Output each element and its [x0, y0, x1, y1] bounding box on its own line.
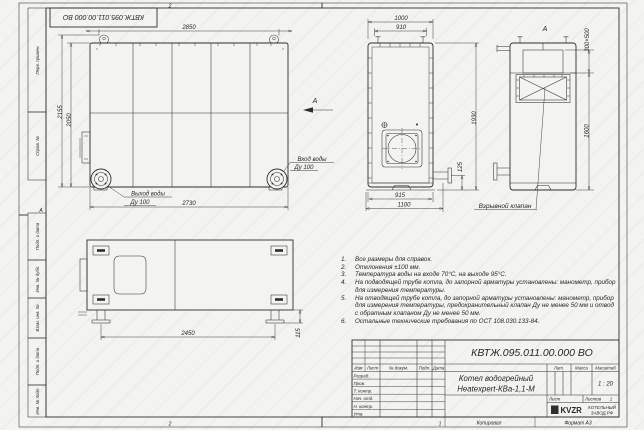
outlet-label: Выход воды — [131, 192, 165, 198]
field-perv-primen: Перв. примен. — [35, 45, 40, 74]
note-text: На отводящей трубе котла, до запорной ар… — [355, 295, 617, 318]
dim-plan-115: 115 — [296, 328, 302, 338]
product-name-line2: Heatexpert-КВа-1,1-М — [457, 385, 535, 394]
note-item: 1.Все размеры для справок. — [341, 256, 617, 264]
masshtab-label: Масштаб — [595, 366, 616, 371]
dim-mid-1930: 1930 — [472, 111, 478, 125]
zone-label-bottom-right: 1 — [439, 422, 442, 428]
technical-notes: 1.Все размеры для справок. 2.Отклонения … — [341, 256, 617, 325]
field-vzam-inv: Взам. инв. № — [35, 304, 40, 331]
doc-code-rotated: КВТЖ.095.011.00.000 ВО — [62, 13, 144, 20]
col-izm: Изм — [354, 366, 362, 371]
field-podp-data-2: Подп. и дата — [35, 347, 40, 375]
company-logo-text: KVZR — [561, 406, 583, 415]
note-text: Все размеры для справок. — [355, 256, 617, 264]
row-razrab: Разраб. — [354, 374, 370, 379]
field-inv-dubl: Инв. № дубл. — [35, 265, 40, 292]
doc-number: КВТЖ.095.011.00.000 ВО — [471, 347, 593, 359]
dim-mid-1000: 1000 — [394, 16, 408, 22]
view-a-label: А — [542, 26, 548, 33]
dim-side-300x500: 300×500 — [585, 28, 591, 52]
product-name-line1: Котел водогрейный — [459, 374, 534, 383]
lit-label: Лит. — [553, 366, 564, 371]
dim-front-height-outer: 2155 — [58, 105, 64, 120]
dim-mid-910: 910 — [396, 25, 407, 31]
listov-label: Листов — [584, 397, 602, 402]
dim-front-width-bottom: 2730 — [181, 201, 196, 207]
view-arrow-label: А — [312, 98, 318, 105]
row-nachotd: Нач. отд. — [354, 396, 374, 401]
note-item: 4.На подводящей трубе котла, до запорной… — [341, 279, 617, 294]
col-docnum: № докум. — [389, 366, 408, 371]
list-label: Лист — [548, 397, 561, 402]
note-item: 3.Температура воды на входе 70°С, на вых… — [341, 271, 617, 279]
dim-front-height-inner: 2050 — [67, 113, 73, 128]
zone-label-bottom: 2 — [168, 422, 172, 428]
col-podp: Подп. — [419, 366, 431, 371]
inlet-label: Вход воды — [297, 157, 327, 163]
note-text: Температура воды на входе 70°С, на выход… — [355, 271, 617, 279]
format-label: Формат А3 — [564, 421, 592, 427]
field-sprav-no: Справ. № — [35, 136, 40, 156]
water-inlet-flange — [267, 169, 287, 189]
note-item: 6.Остальные технические требования по ОС… — [341, 318, 617, 326]
massa-label: Масса — [575, 366, 589, 371]
outlet-dn-label: Ду 100 — [130, 200, 151, 206]
view-a: А 300×500 1600 Взрывной клапан — [474, 26, 594, 210]
front-view: 2850 2155 2050 2730 Выход воды Ду 100 Вх… — [58, 25, 334, 210]
row-prov: Пров. — [354, 381, 366, 386]
col-list: Лист — [366, 366, 379, 371]
row-nkontr: Н. контр. — [354, 404, 374, 409]
zone-label-top: 2 — [168, 4, 172, 10]
company-logo-icon — [551, 406, 559, 415]
dim-mid-125: 125 — [458, 161, 464, 172]
dim-plan-2450: 2450 — [180, 331, 195, 337]
dim-mid-1100: 1100 — [398, 203, 412, 209]
dim-mid-915: 915 — [395, 193, 406, 199]
inlet-dn-label: Ду 100 — [294, 165, 315, 171]
explosion-valve-label: Взрывной клапан — [479, 202, 532, 210]
company-name-line2: ЗАВОД.РФ — [591, 411, 614, 416]
title-block: КВТЖ.095.011.00.000 ВО Котел водогрейный… — [352, 340, 619, 427]
middle-view: 1000 910 1930 125 915 1100 — [366, 16, 479, 212]
kopiroval-label: Копировал — [477, 421, 502, 427]
note-text: На подводящей трубе котла, до запорной а… — [355, 279, 617, 294]
note-item: 5.На отводящей трубе котла, до запорной … — [341, 295, 617, 318]
col-data: Дата — [432, 366, 445, 371]
company-name-line1: КОТЕЛЬНЫЙ — [588, 405, 616, 410]
dim-side-1600: 1600 — [585, 124, 591, 138]
field-podp-data-1: Подп. и дата — [35, 222, 40, 250]
margin-fields: Перв. примен. Справ. № Подп. и дата Инв.… — [28, 8, 46, 417]
dim-front-width-top: 2850 — [181, 25, 196, 31]
view-arrow-icon — [303, 107, 313, 112]
scale-value: 1 : 20 — [598, 382, 614, 388]
field-inv-podl: Инв. № подл. — [35, 387, 40, 414]
note-text: Остальные технические требования по ОСТ … — [355, 318, 617, 326]
listov-value: 1 — [610, 397, 613, 402]
row-tkontr: Т. контр. — [354, 389, 373, 394]
drawing-sheet: 2 2 1 А КВТЖ.095.011.00.000 ВО Перв. при… — [0, 0, 644, 430]
row-utv: Утв. — [354, 411, 364, 416]
drawing-canvas: 2 2 1 А КВТЖ.095.011.00.000 ВО Перв. при… — [0, 0, 644, 430]
plan-view: 2450 115 — [78, 240, 303, 340]
